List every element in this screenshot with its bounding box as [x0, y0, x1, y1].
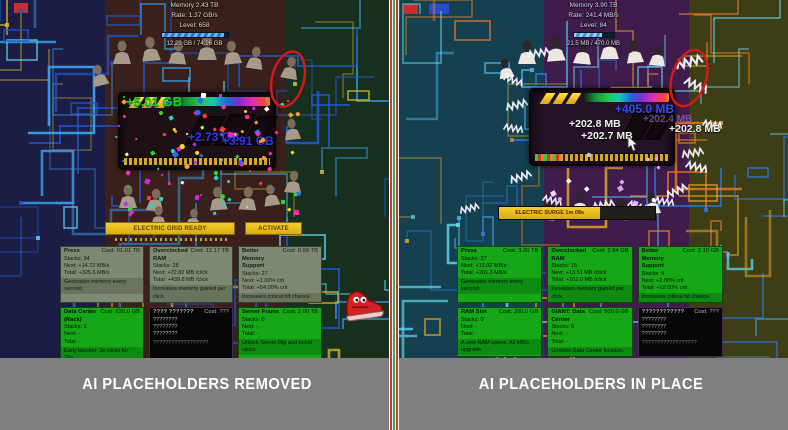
upgrade-stat-line: Stacks: 9 [642, 271, 719, 278]
upgrade-stat-line: Next: +1.00% crit [242, 278, 318, 285]
ram-module-left[interactable]: +5.01 GB +2.73 GB +3.91 GB [118, 92, 276, 170]
upgrade-stat-line: Total: - [551, 339, 628, 346]
red-circle-annotation [262, 46, 314, 112]
upgrade-card[interactable]: Better Memory SupportCost: 0.99 TBStacks… [238, 246, 322, 303]
upgrade-stat-line: Stacks: 28 [153, 263, 229, 270]
ram-rgb-strip [172, 97, 270, 106]
placeholder-bust-icon [207, 185, 229, 210]
upgrade-stat-line: Next: - [461, 324, 538, 331]
upgrade-stat-line: Total: +439.8 MB /click [153, 277, 229, 284]
upgrade-card[interactable]: PressCost: 91.01 TBStacks: 34Next: +14.7… [60, 246, 144, 303]
upgrade-stat-line: Total: +325.6 MB/s [64, 270, 140, 277]
upgrade-card[interactable]: RAM SlotCost: 200.0 GBStacks: 0Next: -To… [457, 307, 542, 357]
upgrade-name: Overclocked RAM [551, 248, 590, 263]
upgrade-name: Server Frame [242, 309, 279, 317]
upgrade-stat-line: Stacks: 0 [551, 324, 628, 331]
upgrade-stat-line: Total: - [242, 331, 318, 338]
upgrade-description: Early booster: 3x clicks for 20s. [61, 347, 143, 358]
hud-right: Memory 3.90 TB Rate: 241.4 MB/s Level: 8… [399, 2, 788, 50]
red-sneaker-bonus-icon[interactable] [337, 281, 386, 327]
upgrade-stat-line: ???????? [153, 324, 229, 331]
upgrade-card[interactable]: Better Memory SupportCost: 2.10 GBStacks… [638, 246, 723, 303]
upgrade-cost: Cost: 91.01 TB [101, 248, 140, 256]
upgrade-stat-line: ???????? [153, 317, 229, 324]
upgrade-stat-line: ???????? [642, 324, 719, 331]
memory-stat: Memory 3.90 TB [399, 2, 788, 9]
progress-text: 21.5 MB / 470.0 MB [399, 41, 788, 47]
upgrade-card[interactable]: ????????????Cost: ??????????????????????… [638, 307, 723, 357]
upgrade-description: Increases critical hit chance. [639, 293, 722, 302]
upgrade-name: Press [64, 248, 80, 256]
tricolor-divider [389, 0, 399, 430]
level-progress-bar [573, 32, 615, 38]
tick-marks [115, 238, 230, 241]
memory-gain-popup: +5.01 GB [126, 94, 182, 109]
upgrade-card[interactable]: Data Center (Rack)Cost: 620.0 GBStacks: … [60, 307, 144, 358]
surge-label: ELECTRIC SURGE 1m 08s [499, 207, 600, 219]
upgrade-stat-line: Next: +14.72 MB/s [64, 263, 140, 270]
upgrade-description: Increases memory gained per click. [548, 285, 631, 301]
caption-right: AI PLACEHOLDERS IN PLACE [410, 358, 772, 430]
ram-pins [124, 157, 270, 165]
comparison-screenshot: Memory 2.43 TB Rate: 1.37 GB/s Level: 65… [0, 0, 788, 430]
upgrade-name: Overclocked RAM [153, 248, 188, 263]
upgrade-stat-line: Stacks: 0 [242, 317, 318, 324]
progress-text: 12.29 GB / 74.96 GB [0, 41, 389, 47]
upgrade-stat-line: ???????? [642, 317, 719, 324]
upgrade-name: Better Memory Support [642, 248, 681, 271]
upgrade-description: Unlock Server Rig and boost clicks. [239, 339, 321, 355]
placeholder-bust-icon [237, 185, 258, 210]
upgrade-card[interactable]: ???? ???????Cost: ??????????????????????… [149, 307, 233, 358]
upgrade-stat-line: Total: +201.3 MB/s [461, 270, 538, 277]
activate-button[interactable]: ACTIVATE [245, 222, 302, 235]
upgrade-stat-line: Next: - [64, 331, 140, 338]
ram-rgb-strip [583, 93, 669, 102]
memory-gain-popup: +202.8 MB [669, 123, 721, 135]
rate-stat: Rate: 241.4 MB/s [399, 12, 788, 19]
scribble-placeholder-icon [508, 168, 534, 186]
upgrade-cost: Cost: 12.17 TB [190, 248, 229, 263]
upgrade-stat-line: Stacks: 0 [461, 317, 538, 324]
upgrade-stat-line: Next: +13.51 MB /click [551, 270, 628, 277]
rate-stat: Rate: 1.37 GB/s [0, 12, 389, 19]
upgrade-name: Better Memory Support [242, 248, 281, 271]
upgrade-panel-right: PressCost: 3.20 TBStacks: 27Next: +13.02… [457, 246, 723, 358]
screenshot-right: Memory 3.90 TB Rate: 241.4 MB/s Level: 8… [399, 0, 788, 358]
upgrade-cost: Cost: 0.99 TB [283, 248, 318, 271]
upgrade-stat-line: Stacks: 27 [242, 271, 318, 278]
upgrade-cost: Cost: 2.00 TB [283, 309, 318, 317]
upgrade-cost: Cost: ??? [204, 309, 229, 317]
upgrade-card[interactable]: Server FrameCost: 2.00 TBStacks: 0Next: … [238, 307, 322, 358]
upgrade-cost: Cost: ??? [694, 309, 719, 317]
memory-stat: Memory 2.43 TB [0, 2, 389, 9]
upgrade-name: Data Center (Rack) [64, 309, 98, 324]
red-circle-annotation [663, 44, 715, 112]
upgrade-stat-line: Next: - [551, 331, 628, 338]
scribble-placeholder-icon [680, 146, 705, 161]
upgrade-description: A new RAM opens. All MB/s upgrade. [458, 339, 541, 355]
upgrade-name: ???? ??????? [153, 309, 194, 317]
placeholder-bust-icon [118, 184, 138, 208]
placeholder-bust-icon [88, 62, 111, 87]
upgrade-name: RAM Slot [461, 309, 487, 317]
upgrade-stat-line: Stacks: 27 [461, 256, 538, 263]
ram-slash-decal [566, 93, 582, 104]
upgrade-card[interactable]: Overclocked RAMCost: 12.17 TBStacks: 28N… [149, 246, 233, 303]
upgrade-stat-line: Total: +18.00% crit [642, 285, 719, 292]
memory-gain-popup: +202.7 MB [581, 130, 633, 142]
upgrade-name: GIANT: Data Center [551, 309, 587, 324]
electric-grid-button[interactable]: ELECTRIC GRID READY [105, 222, 235, 235]
scribble-placeholder-icon [502, 122, 524, 135]
upgrade-card[interactable]: GIANT: Data CenterCost: 500.0 GBStacks: … [547, 307, 632, 357]
level-stat: Level: 658 [0, 22, 389, 29]
placeholder-bust-icon [282, 117, 302, 140]
memory-gain-popup: +202.8 MB [569, 118, 621, 130]
upgrade-cost: Cost: 2.10 GB [683, 248, 719, 271]
caption-left: AI PLACEHOLDERS REMOVED [16, 358, 378, 430]
upgrade-stat-line: ???????? [153, 331, 229, 338]
upgrade-stat-line: Stacks: 1 [64, 324, 140, 331]
level-progress-bar [161, 32, 229, 38]
level-stat: Level: 84 [399, 22, 788, 29]
upgrade-stat-line: Next: +13.02 MB/s [461, 263, 538, 270]
upgrade-stat-line: Next: +2.00% crit [642, 278, 719, 285]
upgrade-stat-line: Next: +22.82 MB /click [153, 270, 229, 277]
progress-fill [574, 33, 602, 37]
placeholder-bust-icon [261, 183, 282, 207]
electric-surge-timer-bar[interactable]: ELECTRIC SURGE 1m 08s [498, 206, 656, 220]
upgrade-stat-line: Total: +102.0 MB /click [551, 277, 628, 284]
upgrade-description: Generates memory every second. [458, 278, 541, 294]
ram-pins [535, 153, 669, 161]
upgrade-description: ?????????????????? [639, 339, 722, 348]
mouse-cursor [627, 136, 639, 152]
upgrade-cost: Cost: 500.0 GB [589, 309, 629, 324]
upgrade-description: Increases critical hit chance. [239, 293, 321, 302]
scribble-placeholder-icon [502, 73, 525, 89]
upgrade-panel-left: PressCost: 91.01 TBStacks: 34Next: +14.7… [60, 246, 322, 358]
upgrade-cost: Cost: 620.0 GB [100, 309, 140, 324]
scribble-placeholder-icon [504, 97, 529, 113]
ram-module-right[interactable]: +202.4 MB +405.0 MB +202.8 MB +202.7 MB … [529, 88, 675, 166]
upgrade-description: ?????????????????? [150, 339, 232, 348]
upgrade-stat-line: Stacks: 15 [551, 263, 628, 270]
placeholder-bust-icon [283, 169, 304, 193]
upgrade-stat-line: Next: - [242, 324, 318, 331]
upgrade-name: ???????????? [642, 309, 685, 317]
upgrade-card[interactable]: PressCost: 3.20 TBStacks: 27Next: +13.02… [457, 246, 542, 303]
upgrade-cost: Cost: 3.20 TB [503, 248, 538, 256]
upgrade-cost: Cost: 3.84 GB [592, 248, 628, 263]
scribble-placeholder-icon [684, 159, 709, 175]
upgrade-description: Generates memory every second. [61, 278, 143, 294]
colored-pins [535, 154, 561, 161]
hud-left: Memory 2.43 TB Rate: 1.37 GB/s Level: 65… [0, 2, 389, 50]
memory-gain-popup: +3.91 GB [222, 134, 274, 148]
upgrade-description: Unlocks Data Center location. [548, 347, 631, 356]
upgrade-description: Increases memory gained per click. [150, 285, 232, 301]
upgrade-stat-line: Total: - [461, 331, 538, 338]
progress-fill [162, 33, 225, 37]
screenshot-left: Memory 2.43 TB Rate: 1.37 GB/s Level: 65… [0, 0, 389, 358]
upgrade-stat-line: ???????? [642, 331, 719, 338]
upgrade-name: Press [461, 248, 477, 256]
scribble-placeholder-icon [458, 201, 481, 216]
upgrade-stat-line: Stacks: 34 [64, 256, 140, 263]
upgrade-cost: Cost: 200.0 GB [499, 309, 539, 317]
upgrade-stat-line: Total: - [64, 339, 140, 346]
upgrade-stat-line: Total: +54.00% crit [242, 285, 318, 292]
upgrade-card[interactable]: Overclocked RAMCost: 3.84 GBStacks: 15Ne… [547, 246, 632, 303]
